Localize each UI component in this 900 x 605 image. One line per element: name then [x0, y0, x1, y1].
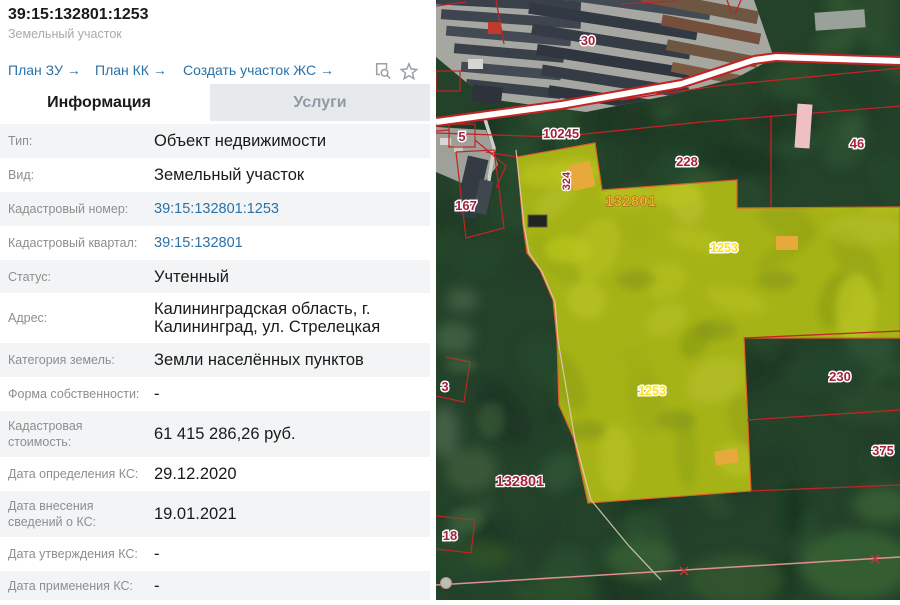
- svg-text:1253: 1253: [710, 241, 738, 255]
- svg-text:5: 5: [458, 129, 465, 144]
- svg-text:375: 375: [872, 443, 894, 458]
- svg-text:1253: 1253: [638, 384, 666, 398]
- svg-text:18: 18: [443, 528, 457, 543]
- svg-text:46: 46: [850, 136, 864, 151]
- svg-text:230: 230: [829, 369, 851, 384]
- svg-text:3: 3: [441, 379, 448, 394]
- svg-text:10245: 10245: [543, 126, 579, 141]
- svg-text:324: 324: [561, 171, 573, 190]
- svg-text:30: 30: [581, 33, 595, 48]
- svg-text:228: 228: [676, 154, 698, 169]
- svg-text:132801: 132801: [496, 474, 544, 490]
- svg-text:132801: 132801: [605, 194, 656, 210]
- svg-text:167: 167: [455, 198, 477, 213]
